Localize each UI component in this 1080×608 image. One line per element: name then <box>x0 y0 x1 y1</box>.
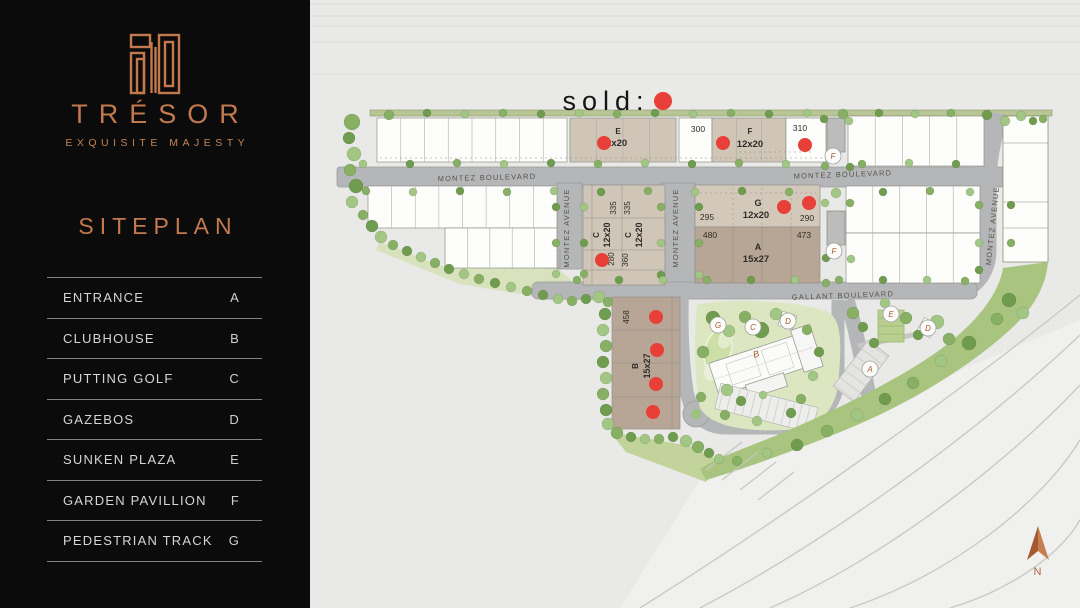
marker-letter: G <box>715 321 721 330</box>
tree-icon <box>821 162 829 170</box>
tree-icon <box>597 188 605 196</box>
tree-icon <box>550 187 558 195</box>
legend-label: GARDEN PAVILLION <box>47 493 207 508</box>
tree-icon <box>640 434 650 444</box>
tree-icon <box>822 279 830 287</box>
sold-dot <box>595 253 609 267</box>
tree-icon <box>547 159 555 167</box>
legend-row-f: GARDEN PAVILLIONF <box>47 480 262 521</box>
block-c-name-a: C <box>592 232 601 238</box>
tree-icon <box>503 188 511 196</box>
tree-icon <box>752 416 762 426</box>
north-label: N <box>1034 566 1043 578</box>
block-a-name: A <box>755 242 762 252</box>
sold-dot <box>649 377 663 391</box>
plot-row2-left-lower <box>445 228 557 268</box>
block-a-size: 15x27 <box>743 254 769 265</box>
block-e-name: E <box>615 127 621 136</box>
tree-icon <box>736 396 746 406</box>
tree-icon <box>691 188 699 196</box>
legend-label: PUTTING GOLF <box>47 371 173 386</box>
legend-label: PEDESTRIAN TRACK <box>47 533 213 548</box>
tree-icon <box>359 160 367 168</box>
tree-icon <box>926 187 934 195</box>
tree-icon <box>402 246 412 256</box>
plot-335-b: 335 <box>623 201 632 215</box>
tree-icon <box>845 117 853 125</box>
tree-icon <box>406 160 414 168</box>
tree-icon <box>762 448 772 458</box>
siteplan-canvas: sold:MONTEZ BOULEVARDMONTEZ BOULEVARDMON… <box>310 0 1080 608</box>
tree-icon <box>814 347 824 357</box>
tree-icon <box>975 201 983 209</box>
tree-icon <box>600 404 612 416</box>
tree-icon <box>641 159 649 167</box>
plot-360: 360 <box>621 253 630 267</box>
sold-dot <box>798 138 812 152</box>
tree-icon <box>808 371 818 381</box>
legend-label: GAZEBOS <box>47 412 134 427</box>
tree-icon <box>907 377 919 389</box>
plot-row2-right-upper <box>846 186 980 233</box>
tree-icon <box>615 276 623 284</box>
tree-icon <box>537 110 545 118</box>
tree-icon <box>553 294 563 304</box>
legend-label: CLUBHOUSE <box>47 331 155 346</box>
tree-icon <box>869 338 879 348</box>
tree-icon <box>552 239 560 247</box>
tree-icon <box>935 355 947 367</box>
block-c-name-b: C <box>624 232 633 238</box>
tree-icon <box>349 179 363 193</box>
tree-icon <box>362 187 370 195</box>
tree-icon <box>704 448 714 458</box>
sold-dot <box>716 136 730 150</box>
tree-icon <box>703 276 711 284</box>
tree-icon <box>597 356 609 368</box>
tree-icon <box>1000 116 1010 126</box>
tree-icon <box>506 282 516 292</box>
top-road-lines <box>310 4 1080 74</box>
tree-icon <box>695 239 703 247</box>
tree-icon <box>603 297 613 307</box>
tree-icon <box>597 324 609 336</box>
tree-icon <box>1017 307 1029 319</box>
tree-icon <box>838 109 848 119</box>
tree-icon <box>594 160 602 168</box>
legend-row-c: PUTTING GOLFC <box>47 358 262 399</box>
plot-295: 295 <box>700 212 714 222</box>
tree-icon <box>344 164 356 176</box>
marker-letter: D <box>925 324 931 333</box>
tree-icon <box>580 203 588 211</box>
plot-473: 473 <box>797 230 811 240</box>
tree-icon <box>602 418 614 430</box>
tree-icon <box>344 114 360 130</box>
tree-icon <box>695 271 703 279</box>
sold-dot <box>650 343 664 357</box>
tree-icon <box>923 276 931 284</box>
tree-icon <box>522 286 532 296</box>
tree-icon <box>847 307 859 319</box>
tree-icon <box>785 188 793 196</box>
tree-icon <box>858 322 868 332</box>
tree-icon <box>952 160 960 168</box>
tree-icon <box>697 346 709 358</box>
tree-icon <box>343 132 355 144</box>
tree-icon <box>347 147 361 161</box>
tree-icon <box>599 308 611 320</box>
tree-icon <box>366 220 378 232</box>
tree-icon <box>858 160 866 168</box>
tree-icon <box>759 391 767 399</box>
legend-row-a: ENTRANCEA <box>47 277 262 318</box>
tree-icon <box>696 392 706 402</box>
tree-icon <box>409 188 417 196</box>
tree-icon <box>961 277 969 285</box>
tree-icon <box>459 269 469 279</box>
tree-icon <box>552 270 560 278</box>
tree-icon <box>1007 239 1015 247</box>
tree-icon <box>966 188 974 196</box>
legend-key: F <box>231 493 262 508</box>
tree-icon <box>567 296 577 306</box>
tree-icon <box>721 384 733 396</box>
tree-icon <box>580 239 588 247</box>
tree-icon <box>1007 201 1015 209</box>
sidebar: TRÉSOR EXQUISITE MAJESTY SITEPLAN ENTRAN… <box>0 0 310 608</box>
tree-icon <box>654 434 664 444</box>
tree-icon <box>689 110 697 118</box>
legend-key: A <box>230 290 262 305</box>
tree-icon <box>668 432 678 442</box>
tree-icon <box>821 199 829 207</box>
tree-icon <box>423 109 431 117</box>
legend-key: D <box>229 412 262 427</box>
sold-dot <box>649 310 663 324</box>
road-label-montez-avenue-west: MONTEZ AVENUE <box>562 188 571 267</box>
tree-icon <box>657 239 665 247</box>
tree-icon <box>714 454 724 464</box>
sold-dot <box>597 136 611 150</box>
tree-icon <box>975 239 983 247</box>
tree-icon <box>791 276 799 284</box>
tree-icon <box>474 274 484 284</box>
legend-key: E <box>230 452 262 467</box>
tree-icon <box>735 159 743 167</box>
tree-icon <box>680 435 692 447</box>
marker-letter: C <box>750 323 756 332</box>
tree-icon <box>962 336 976 350</box>
tree-icon <box>552 203 560 211</box>
page-title: SITEPLAN <box>0 213 310 240</box>
tree-icon <box>835 276 843 284</box>
plot-290: 290 <box>800 213 814 223</box>
tree-icon <box>692 441 704 453</box>
cul-de-sac-island <box>691 409 701 419</box>
tree-icon <box>659 276 667 284</box>
tree-icon <box>456 187 464 195</box>
tree-icon <box>820 115 828 123</box>
tree-icon <box>732 456 742 466</box>
tree-icon <box>1029 117 1037 125</box>
plot-row2-right-lower <box>846 233 980 283</box>
tree-icon <box>802 325 812 335</box>
entrance-pavilion-top <box>827 118 845 152</box>
legend-label: SUNKEN PLAZA <box>47 452 176 467</box>
tresor-logo-icon <box>128 33 182 95</box>
tree-icon <box>499 109 507 117</box>
sold-dot <box>654 92 672 110</box>
legend-row-g: PEDESTRIAN TRACKG <box>47 520 262 562</box>
tree-icon <box>782 160 790 168</box>
plot-row-top-right <box>848 116 984 166</box>
legend-row-b: CLUBHOUSEB <box>47 318 262 359</box>
legend-key: B <box>230 331 262 346</box>
siteplan-page: { "sidebar": { "brand": "TRÉSOR", "tagli… <box>0 0 1080 608</box>
legend-row-d: GAZEBOSD <box>47 399 262 440</box>
block-f-size: 12x20 <box>737 139 763 150</box>
marker-letter: E <box>888 310 894 319</box>
road-label-montez-avenue-mid: MONTEZ AVENUE <box>671 188 680 267</box>
plot-480: 480 <box>703 230 717 240</box>
tree-icon <box>538 290 548 300</box>
block-b-name: B <box>631 363 640 369</box>
sold-label: sold: <box>562 86 649 116</box>
tree-icon <box>358 210 368 220</box>
tree-icon <box>375 231 387 243</box>
tree-icon <box>875 109 883 117</box>
tree-icon <box>738 187 746 195</box>
tree-icon <box>905 159 913 167</box>
plot-335-a: 335 <box>609 201 618 215</box>
tree-icon <box>803 109 811 117</box>
tree-icon <box>747 276 755 284</box>
tree-icon <box>346 196 358 208</box>
block-f-name: F <box>748 127 753 136</box>
tree-icon <box>581 294 591 304</box>
tree-icon <box>879 188 887 196</box>
brand-name: TRÉSOR <box>0 99 310 130</box>
tree-icon <box>657 203 665 211</box>
tree-icon <box>975 266 983 274</box>
tree-icon <box>765 110 773 118</box>
tree-icon <box>786 408 796 418</box>
tree-icon <box>943 333 955 345</box>
tree-icon <box>947 109 955 117</box>
tree-icon <box>430 258 440 268</box>
sold-dot <box>646 405 660 419</box>
block-b-size: 15x27 <box>642 353 652 378</box>
tree-icon <box>695 203 703 211</box>
tree-icon <box>500 160 508 168</box>
tree-icon <box>461 110 469 118</box>
tree-icon <box>644 187 652 195</box>
tree-icon <box>453 159 461 167</box>
tree-icon <box>626 432 636 442</box>
tree-icon <box>1039 115 1047 123</box>
sold-dot <box>777 200 791 214</box>
tree-icon <box>1002 293 1016 307</box>
legend-list: ENTRANCEACLUBHOUSEBPUTTING GOLFCGAZEBOSD… <box>47 277 262 562</box>
entrance-pavilion-mid <box>827 211 845 245</box>
tree-icon <box>847 255 855 263</box>
siteplan-map: sold:MONTEZ BOULEVARDMONTEZ BOULEVARDMON… <box>310 0 1080 608</box>
legend-label: ENTRANCE <box>47 290 144 305</box>
tree-icon <box>490 278 500 288</box>
brand-tagline: EXQUISITE MAJESTY <box>0 137 310 149</box>
tree-icon <box>991 313 1003 325</box>
tree-icon <box>580 270 588 278</box>
plot-310: 310 <box>793 123 807 133</box>
tree-icon <box>388 240 398 250</box>
tree-icon <box>727 109 735 117</box>
tree-icon <box>384 110 394 120</box>
tree-icon <box>982 110 992 120</box>
tree-icon <box>720 410 730 420</box>
tree-icon <box>851 409 863 421</box>
tree-icon <box>611 427 623 439</box>
tree-icon <box>791 439 803 451</box>
block-c-size-b: 12x20 <box>634 222 644 247</box>
tree-icon <box>444 264 454 274</box>
legend-key: G <box>229 533 262 548</box>
tree-icon <box>879 393 891 405</box>
legend-row-e: SUNKEN PLAZAE <box>47 439 262 480</box>
tree-icon <box>1016 111 1026 121</box>
plot-458: 458 <box>622 310 631 324</box>
tree-icon <box>821 425 833 437</box>
sold-dot <box>802 196 816 210</box>
tree-icon <box>597 388 609 400</box>
loop-road-west <box>682 288 691 406</box>
tree-icon <box>688 160 696 168</box>
tree-icon <box>600 340 612 352</box>
marker-letter: D <box>785 317 791 326</box>
tree-icon <box>600 372 612 384</box>
plot-300: 300 <box>691 124 705 134</box>
tree-icon <box>573 276 581 284</box>
tree-icon <box>831 188 841 198</box>
marker-letter: A <box>866 365 872 374</box>
block-g-size: 12x20 <box>743 210 769 221</box>
tree-icon <box>879 276 887 284</box>
tree-icon <box>911 110 919 118</box>
tree-icon <box>416 252 426 262</box>
block-c-size-a: 12x20 <box>602 222 612 247</box>
tree-icon <box>796 394 806 404</box>
block-g-name: G <box>754 198 761 208</box>
tree-icon <box>846 199 854 207</box>
legend-key: C <box>229 371 262 386</box>
tree-icon <box>651 109 659 117</box>
tree-icon <box>900 312 912 324</box>
